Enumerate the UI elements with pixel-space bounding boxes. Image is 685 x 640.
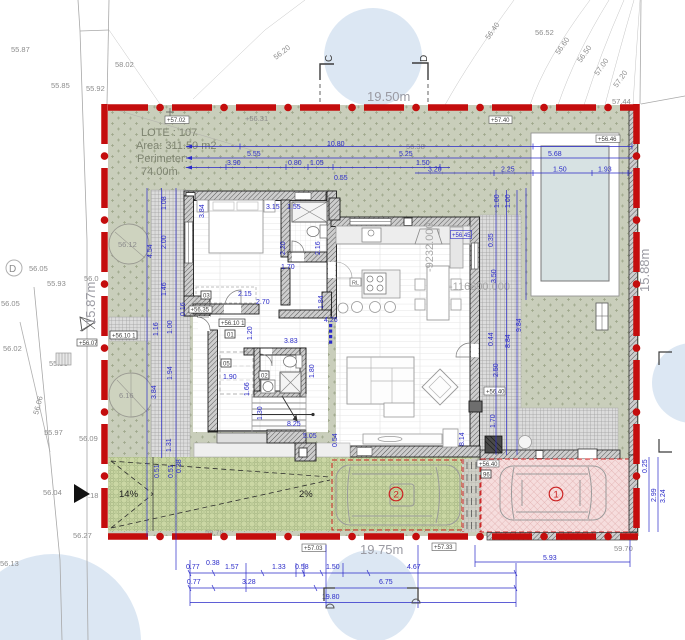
svg-text:55.97: 55.97 (44, 428, 63, 437)
svg-text:56.05: 56.05 (29, 264, 48, 273)
svg-text:2.99: 2.99 (651, 488, 658, 502)
svg-text:03: 03 (203, 294, 210, 300)
svg-text:2.15: 2.15 (238, 291, 252, 298)
svg-text:1.80: 1.80 (309, 364, 316, 378)
svg-text:2.25: 2.25 (501, 167, 515, 174)
svg-text:15.87m: 15.87m (83, 282, 98, 325)
svg-text:+56.07: +56.07 (79, 341, 98, 347)
svg-text:0.77: 0.77 (187, 579, 201, 586)
svg-text:1.93: 1.93 (598, 167, 612, 174)
svg-text:1.84: 1.84 (318, 295, 325, 309)
svg-text:1.30: 1.30 (257, 406, 264, 420)
svg-text:56.12: 56.12 (118, 240, 137, 249)
svg-text:+57.03: +57.03 (304, 546, 323, 552)
svg-text:0.51: 0.51 (154, 464, 161, 478)
svg-text:1.33: 1.33 (272, 564, 286, 571)
svg-text:56.13: 56.13 (0, 559, 19, 568)
svg-text:3.84: 3.84 (151, 385, 158, 399)
svg-text:10.80: 10.80 (327, 141, 345, 148)
svg-text:2.20: 2.20 (280, 241, 287, 255)
svg-text:56.27: 56.27 (73, 531, 92, 540)
svg-text:74.00m: 74.00m (141, 166, 178, 178)
svg-text:5.55: 5.55 (247, 151, 261, 158)
svg-text:55.93: 55.93 (47, 279, 66, 288)
svg-text:0.58: 0.58 (295, 564, 309, 571)
svg-text:1.00: 1.00 (505, 194, 512, 208)
svg-text:58.02: 58.02 (115, 60, 134, 69)
svg-text:1.16: 1.16 (153, 322, 160, 336)
svg-text:1.94: 1.94 (167, 366, 174, 380)
svg-text:55.87: 55.87 (11, 45, 30, 54)
svg-text:0.44: 0.44 (488, 332, 495, 346)
svg-text:55.85: 55.85 (51, 81, 70, 90)
svg-text:0.77: 0.77 (186, 564, 200, 571)
svg-text:1.50: 1.50 (553, 167, 567, 174)
svg-text:3.15: 3.15 (266, 204, 280, 211)
svg-text:Area: 311.50 m2: Area: 311.50 m2 (136, 140, 217, 152)
svg-text:19.75m: 19.75m (360, 542, 403, 557)
svg-text:3.24: 3.24 (660, 489, 667, 503)
svg-text:0.55: 0.55 (334, 175, 348, 182)
svg-text:0.54: 0.54 (332, 433, 339, 447)
svg-text:0.16: 0.16 (180, 302, 187, 316)
svg-text:+56.10 1: +56.10 1 (221, 321, 245, 327)
svg-text:6.75: 6.75 (379, 579, 393, 586)
svg-text:+57.33: +57.33 (434, 545, 453, 551)
svg-text:8.25: 8.25 (287, 421, 301, 428)
svg-text:56.04: 56.04 (43, 488, 62, 497)
svg-text:1.70: 1.70 (281, 264, 295, 271)
svg-text:1: 1 (554, 490, 559, 501)
svg-text:+56.35: +56.35 (191, 308, 210, 314)
svg-text:Perimeter:: Perimeter: (137, 153, 188, 165)
svg-text:0.38: 0.38 (176, 459, 183, 473)
svg-text:6.16: 6.16 (119, 391, 134, 400)
svg-text:56.05: 56.05 (1, 299, 20, 308)
svg-text:9.84: 9.84 (516, 318, 523, 332)
svg-text:19.50m: 19.50m (367, 89, 410, 104)
svg-text:RL: RL (352, 281, 359, 287)
svg-text:3.50: 3.50 (491, 269, 498, 283)
svg-text:2.00: 2.00 (161, 235, 168, 249)
svg-text:+56.40: +56.40 (486, 390, 505, 396)
svg-text:5.05: 5.05 (303, 433, 317, 440)
svg-text:5.93: 5.93 (543, 555, 557, 562)
svg-text:4.26: 4.26 (324, 317, 338, 324)
svg-text:02: 02 (261, 374, 268, 380)
svg-text:14%: 14% (119, 489, 139, 500)
svg-text:3.84: 3.84 (199, 204, 206, 218)
svg-text:0.38: 0.38 (206, 560, 220, 567)
svg-text:3.90: 3.90 (227, 160, 241, 167)
svg-text:2.16: 2.16 (315, 241, 322, 255)
svg-text:+56.40: +56.40 (479, 462, 498, 468)
svg-text:55.92: 55.92 (86, 84, 105, 93)
svg-text:D: D (419, 55, 430, 62)
svg-text:2.50: 2.50 (493, 363, 500, 377)
svg-text:+56.46: +56.46 (598, 137, 617, 143)
svg-text:5.25: 5.25 (399, 151, 413, 158)
svg-text:1.31: 1.31 (166, 438, 173, 452)
svg-text:0.35: 0.35 (488, 233, 495, 247)
svg-text:2%: 2% (299, 489, 313, 500)
svg-text:0.80: 0.80 (288, 160, 302, 167)
svg-text:5.68: 5.68 (548, 151, 562, 158)
svg-text:4.67: 4.67 (407, 564, 421, 571)
svg-text:LOTE : 107: LOTE : 107 (141, 127, 197, 139)
svg-text:0.51: 0.51 (168, 464, 175, 478)
svg-text:8.84: 8.84 (505, 334, 512, 348)
svg-text:01: 01 (227, 333, 234, 339)
svg-text:56.02: 56.02 (3, 344, 22, 353)
svg-text:+56.10 1: +56.10 1 (112, 334, 136, 340)
svg-text:C: C (324, 55, 335, 62)
svg-text:2.70: 2.70 (256, 299, 270, 306)
svg-text:56.52: 56.52 (535, 28, 554, 37)
svg-text:+56.31: +56.31 (245, 114, 268, 123)
svg-text:1.08: 1.08 (161, 196, 168, 210)
svg-text:1.57: 1.57 (225, 564, 239, 571)
svg-text:3.83: 3.83 (284, 338, 298, 345)
svg-text:D: D (9, 264, 16, 275)
svg-text:.18: .18 (88, 491, 98, 500)
svg-text:1.00: 1.00 (167, 320, 174, 334)
svg-text:+56.45: +56.45 (452, 233, 471, 239)
svg-text:-116800.000: -116800.000 (449, 281, 510, 293)
svg-text:-9232.000: -9232.000 (424, 222, 436, 272)
svg-text:05: 05 (223, 362, 230, 368)
svg-text:1.05: 1.05 (310, 160, 324, 167)
svg-text:1.46: 1.46 (161, 282, 168, 296)
svg-text:1.00: 1.00 (494, 194, 501, 208)
svg-text:1.66: 1.66 (244, 382, 251, 396)
svg-text:2: 2 (394, 490, 399, 501)
svg-text:3.28: 3.28 (242, 579, 256, 586)
svg-text:1.70: 1.70 (490, 414, 497, 428)
svg-text:3.20: 3.20 (428, 167, 442, 174)
svg-text:96: 96 (483, 473, 490, 479)
svg-text:+57.02: +57.02 (167, 118, 186, 124)
svg-text:1.50: 1.50 (326, 564, 340, 571)
svg-text:4.54: 4.54 (147, 244, 154, 258)
svg-text:1.55: 1.55 (287, 204, 301, 211)
svg-text:+57.40: +57.40 (491, 118, 510, 124)
svg-text:1.90: 1.90 (223, 374, 237, 381)
svg-text:0.25: 0.25 (642, 459, 649, 473)
svg-text:8.14: 8.14 (459, 432, 466, 446)
svg-text:56.09: 56.09 (79, 434, 98, 443)
svg-text:1.20: 1.20 (247, 326, 254, 340)
